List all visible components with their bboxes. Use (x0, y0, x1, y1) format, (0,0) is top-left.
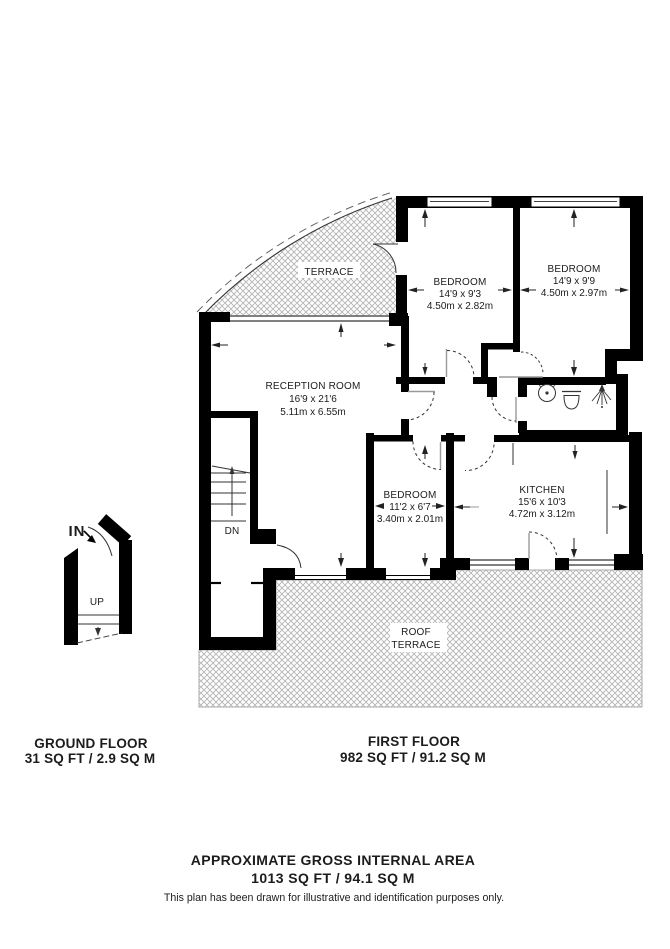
svg-text:16'9 x 21'6: 16'9 x 21'6 (289, 394, 337, 405)
svg-text:RECEPTION ROOM: RECEPTION ROOM (265, 381, 360, 392)
svg-text:KITCHEN: KITCHEN (519, 485, 564, 496)
svg-text:GROUND FLOOR: GROUND FLOOR (34, 736, 147, 751)
svg-text:IN: IN (69, 523, 86, 540)
svg-text:4.72m x 3.12m: 4.72m x 3.12m (509, 509, 575, 520)
svg-text:FIRST FLOOR: FIRST FLOOR (368, 734, 460, 749)
svg-text:14'9 x 9'9: 14'9 x 9'9 (553, 276, 596, 287)
svg-text:1013 SQ FT / 94.1 SQ M: 1013 SQ FT / 94.1 SQ M (251, 870, 415, 886)
svg-text:15'6 x 10'3: 15'6 x 10'3 (518, 497, 566, 508)
svg-text:UP: UP (90, 597, 104, 608)
svg-text:5.11m x 6.55m: 5.11m x 6.55m (280, 407, 345, 418)
svg-text:31 SQ FT / 2.9 SQ M: 31 SQ FT / 2.9 SQ M (25, 751, 156, 766)
svg-text:4.50m x 2.82m: 4.50m x 2.82m (427, 301, 493, 312)
svg-text:BEDROOM: BEDROOM (433, 277, 486, 288)
svg-text:ROOF: ROOF (401, 627, 431, 638)
svg-text:3.40m x 2.01m: 3.40m x 2.01m (377, 514, 443, 525)
svg-text:BEDROOM: BEDROOM (547, 264, 600, 275)
svg-text:4.50m x 2.97m: 4.50m x 2.97m (541, 288, 607, 299)
svg-text:982 SQ FT / 91.2 SQ M: 982 SQ FT / 91.2 SQ M (340, 750, 486, 765)
svg-text:This plan has been drawn for i: This plan has been drawn for illustrativ… (164, 892, 504, 904)
svg-text:14'9 x 9'3: 14'9 x 9'3 (439, 289, 482, 300)
svg-text:11'2 x 6'7: 11'2 x 6'7 (389, 502, 431, 513)
svg-text:APPROXIMATE GROSS INTERNAL ARE: APPROXIMATE GROSS INTERNAL AREA (191, 852, 475, 868)
svg-text:TERRACE: TERRACE (391, 640, 440, 651)
svg-text:TERRACE: TERRACE (304, 267, 353, 278)
svg-text:DN: DN (225, 526, 240, 537)
svg-text:BEDROOM: BEDROOM (383, 490, 436, 501)
